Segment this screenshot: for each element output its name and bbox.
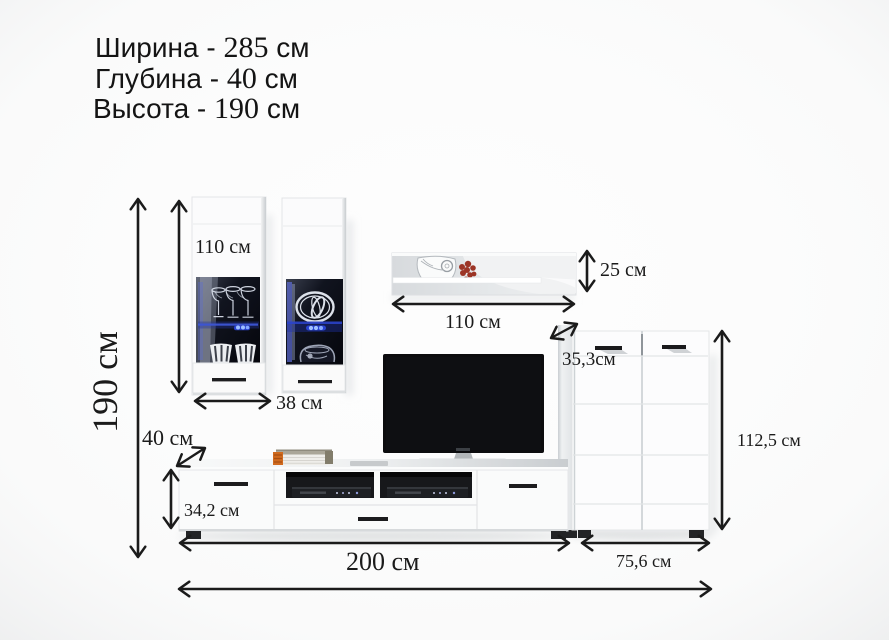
svg-text:40 см: 40 см xyxy=(142,425,193,450)
svg-text:190 см: 190 см xyxy=(85,331,125,433)
svg-text:38 см: 38 см xyxy=(276,392,323,414)
svg-text:110 см: 110 см xyxy=(445,311,501,333)
svg-text:25 см: 25 см xyxy=(600,259,647,281)
svg-text:75,6 см: 75,6 см xyxy=(616,551,671,571)
svg-text:Глубина - 40 см: Глубина - 40 см xyxy=(95,62,298,95)
svg-text:200 см: 200 см xyxy=(346,547,420,576)
svg-text:35,3см: 35,3см xyxy=(562,349,616,370)
svg-text:Высота - 190 см: Высота - 190 см xyxy=(93,92,300,125)
svg-text:112,5 см: 112,5 см xyxy=(737,430,801,450)
svg-text:110 см: 110 см xyxy=(195,236,251,258)
svg-text:Ширина - 285 см: Ширина - 285 см xyxy=(95,31,309,64)
svg-text:34,2 см: 34,2 см xyxy=(184,500,239,520)
